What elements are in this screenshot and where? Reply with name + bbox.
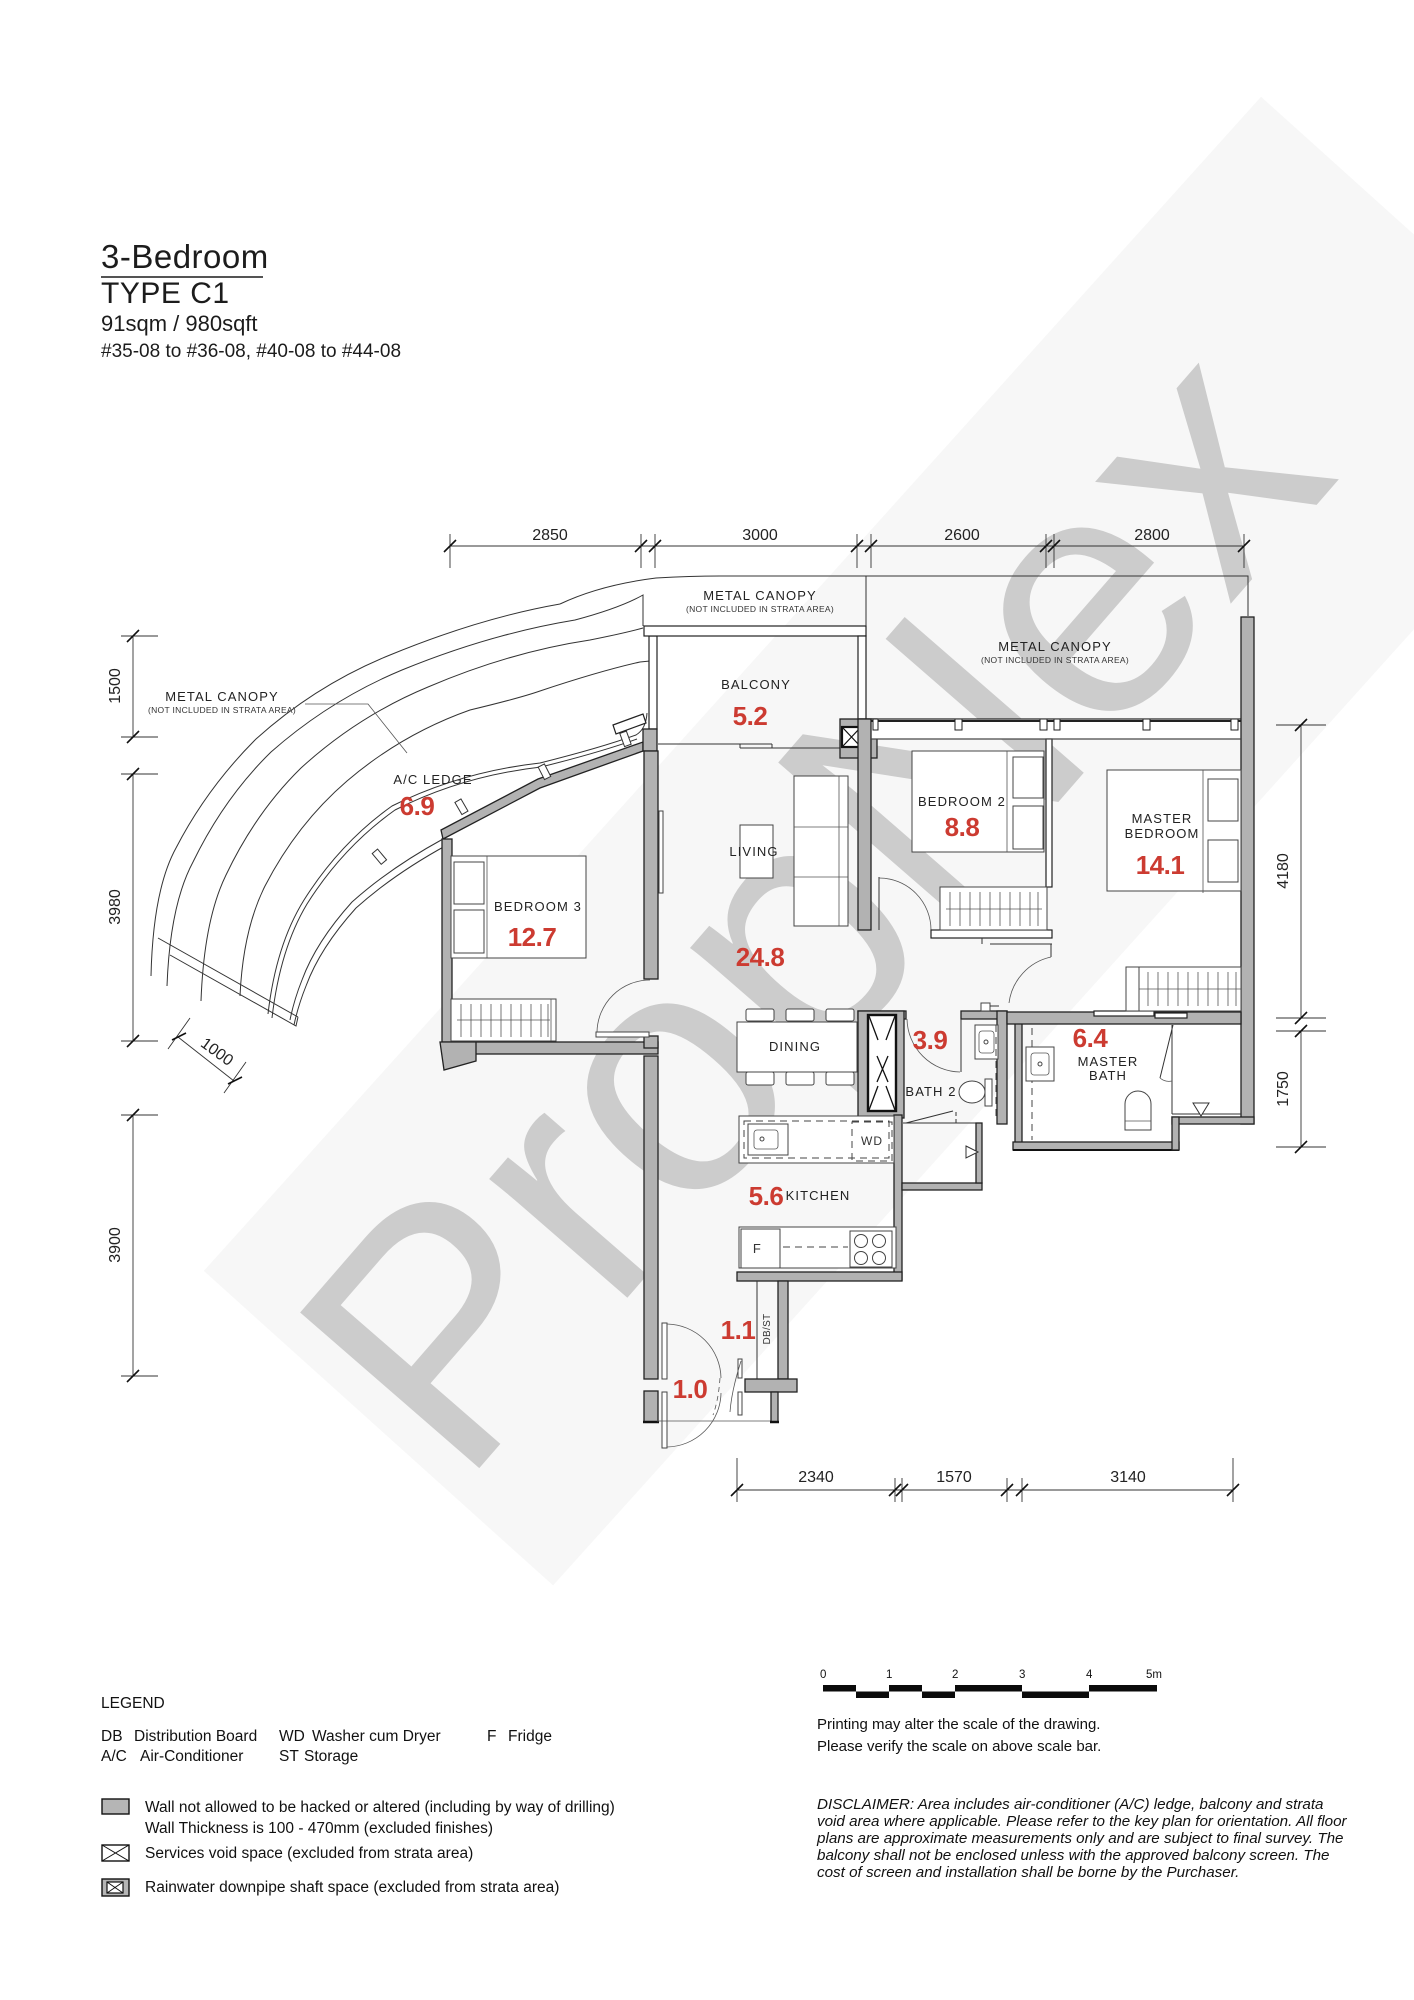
svg-text:DB/ST: DB/ST xyxy=(762,1314,773,1345)
svg-text:3.9: 3.9 xyxy=(913,1025,948,1055)
svg-text:1.0: 1.0 xyxy=(673,1374,708,1404)
svg-text:5m: 5m xyxy=(1146,1669,1162,1681)
svg-text:BALCONY: BALCONY xyxy=(721,677,791,692)
svg-text:balcony shall not be enclosed: balcony shall not be enclosed unless wit… xyxy=(817,1847,1329,1864)
svg-text:3900: 3900 xyxy=(107,1227,124,1263)
svg-text:2: 2 xyxy=(952,1669,958,1681)
svg-text:BATH 2: BATH 2 xyxy=(905,1084,956,1099)
svg-text:24.8: 24.8 xyxy=(736,942,785,972)
svg-text:Services void space (excluded: Services void space (excluded from strat… xyxy=(145,1845,473,1862)
svg-text:2600: 2600 xyxy=(944,527,980,544)
svg-text:BEDROOM 2: BEDROOM 2 xyxy=(918,794,1006,809)
svg-text:WD: WD xyxy=(279,1728,305,1745)
svg-text:KITCHEN: KITCHEN xyxy=(786,1188,851,1203)
svg-text:METAL CANOPY: METAL CANOPY xyxy=(998,639,1112,654)
svg-text:METAL CANOPY: METAL CANOPY xyxy=(703,588,817,603)
svg-text:4180: 4180 xyxy=(1275,853,1292,889)
svg-text:A/C: A/C xyxy=(101,1748,127,1765)
svg-text:1500: 1500 xyxy=(107,668,124,704)
svg-text:4: 4 xyxy=(1086,1669,1093,1681)
svg-text:Wall Thickness is 100 - 470mm: Wall Thickness is 100 - 470mm (excluded … xyxy=(145,1820,493,1837)
svg-text:8.8: 8.8 xyxy=(945,812,980,842)
svg-text:ST: ST xyxy=(279,1748,299,1765)
svg-text:F: F xyxy=(487,1728,496,1745)
svg-text:3980: 3980 xyxy=(107,889,124,925)
svg-text:TYPE C1: TYPE C1 xyxy=(101,277,230,310)
svg-text:Distribution Board: Distribution Board xyxy=(134,1728,257,1745)
svg-text:1: 1 xyxy=(886,1669,892,1681)
svg-text:DINING: DINING xyxy=(769,1039,821,1054)
svg-text:1570: 1570 xyxy=(936,1469,972,1486)
svg-text:LEGEND: LEGEND xyxy=(101,1695,165,1712)
svg-text:(NOT INCLUDED IN STRATA AREA): (NOT INCLUDED IN STRATA AREA) xyxy=(686,604,834,614)
svg-text:5.6: 5.6 xyxy=(749,1181,784,1211)
svg-text:plans are approximate measurem: plans are approximate measurements only … xyxy=(816,1830,1344,1847)
svg-text:0: 0 xyxy=(820,1669,826,1681)
svg-text:MASTER: MASTER xyxy=(1078,1054,1139,1069)
svg-text:6.9: 6.9 xyxy=(400,791,435,821)
svg-text:cost of screen and installatio: cost of screen and installation shall be… xyxy=(817,1864,1239,1881)
svg-text:Wall not allowed to be hacked: Wall not allowed to be hacked or altered… xyxy=(145,1799,615,1816)
svg-text:DISCLAIMER: Area includes air-: DISCLAIMER: Area includes air-conditione… xyxy=(817,1796,1324,1813)
svg-text:2800: 2800 xyxy=(1134,527,1170,544)
svg-text:#35-08 to #36-08, #40-08 to #4: #35-08 to #36-08, #40-08 to #44-08 xyxy=(101,341,401,362)
svg-text:(NOT INCLUDED IN STRATA AREA): (NOT INCLUDED IN STRATA AREA) xyxy=(148,705,296,715)
svg-text:BEDROOM 3: BEDROOM 3 xyxy=(494,899,582,914)
svg-text:DB: DB xyxy=(101,1728,123,1745)
svg-text:12.7: 12.7 xyxy=(508,922,557,952)
svg-text:BEDROOM: BEDROOM xyxy=(1125,826,1200,841)
svg-text:3: 3 xyxy=(1019,1669,1025,1681)
svg-text:Storage: Storage xyxy=(304,1748,358,1765)
svg-text:Washer cum Dryer: Washer cum Dryer xyxy=(312,1728,441,1745)
svg-text:3-Bedroom: 3-Bedroom xyxy=(101,238,269,275)
svg-text:2850: 2850 xyxy=(532,527,568,544)
svg-text:BATH: BATH xyxy=(1089,1068,1127,1083)
svg-text:3000: 3000 xyxy=(742,527,778,544)
svg-text:Printing may alter the scale o: Printing may alter the scale of the draw… xyxy=(817,1716,1100,1733)
svg-text:5.2: 5.2 xyxy=(733,701,768,731)
svg-text:F: F xyxy=(753,1241,761,1256)
svg-text:Please verify the scale on abo: Please verify the scale on above scale b… xyxy=(817,1738,1101,1755)
svg-text:METAL CANOPY: METAL CANOPY xyxy=(165,689,279,704)
svg-text:void area where applicable. Pl: void area where applicable. Please refer… xyxy=(817,1813,1348,1830)
svg-text:WD: WD xyxy=(861,1134,883,1148)
svg-text:(NOT INCLUDED IN STRATA AREA): (NOT INCLUDED IN STRATA AREA) xyxy=(981,655,1129,665)
svg-text:14.1: 14.1 xyxy=(1136,850,1185,880)
svg-text:2340: 2340 xyxy=(798,1469,834,1486)
svg-text:Rainwater downpipe shaft space: Rainwater downpipe shaft space (excluded… xyxy=(145,1879,559,1896)
svg-text:Air-Conditioner: Air-Conditioner xyxy=(140,1748,243,1765)
svg-text:A/C LEDGE: A/C LEDGE xyxy=(393,772,472,787)
svg-text:LIVING: LIVING xyxy=(729,844,778,859)
svg-text:MASTER: MASTER xyxy=(1132,811,1193,826)
svg-text:91sqm / 980sqft: 91sqm / 980sqft xyxy=(101,311,258,336)
svg-text:Fridge: Fridge xyxy=(508,1728,552,1745)
svg-text:1750: 1750 xyxy=(1275,1071,1292,1107)
svg-text:3140: 3140 xyxy=(1110,1469,1146,1486)
svg-text:6.4: 6.4 xyxy=(1073,1023,1109,1053)
svg-text:1.1: 1.1 xyxy=(721,1315,756,1345)
